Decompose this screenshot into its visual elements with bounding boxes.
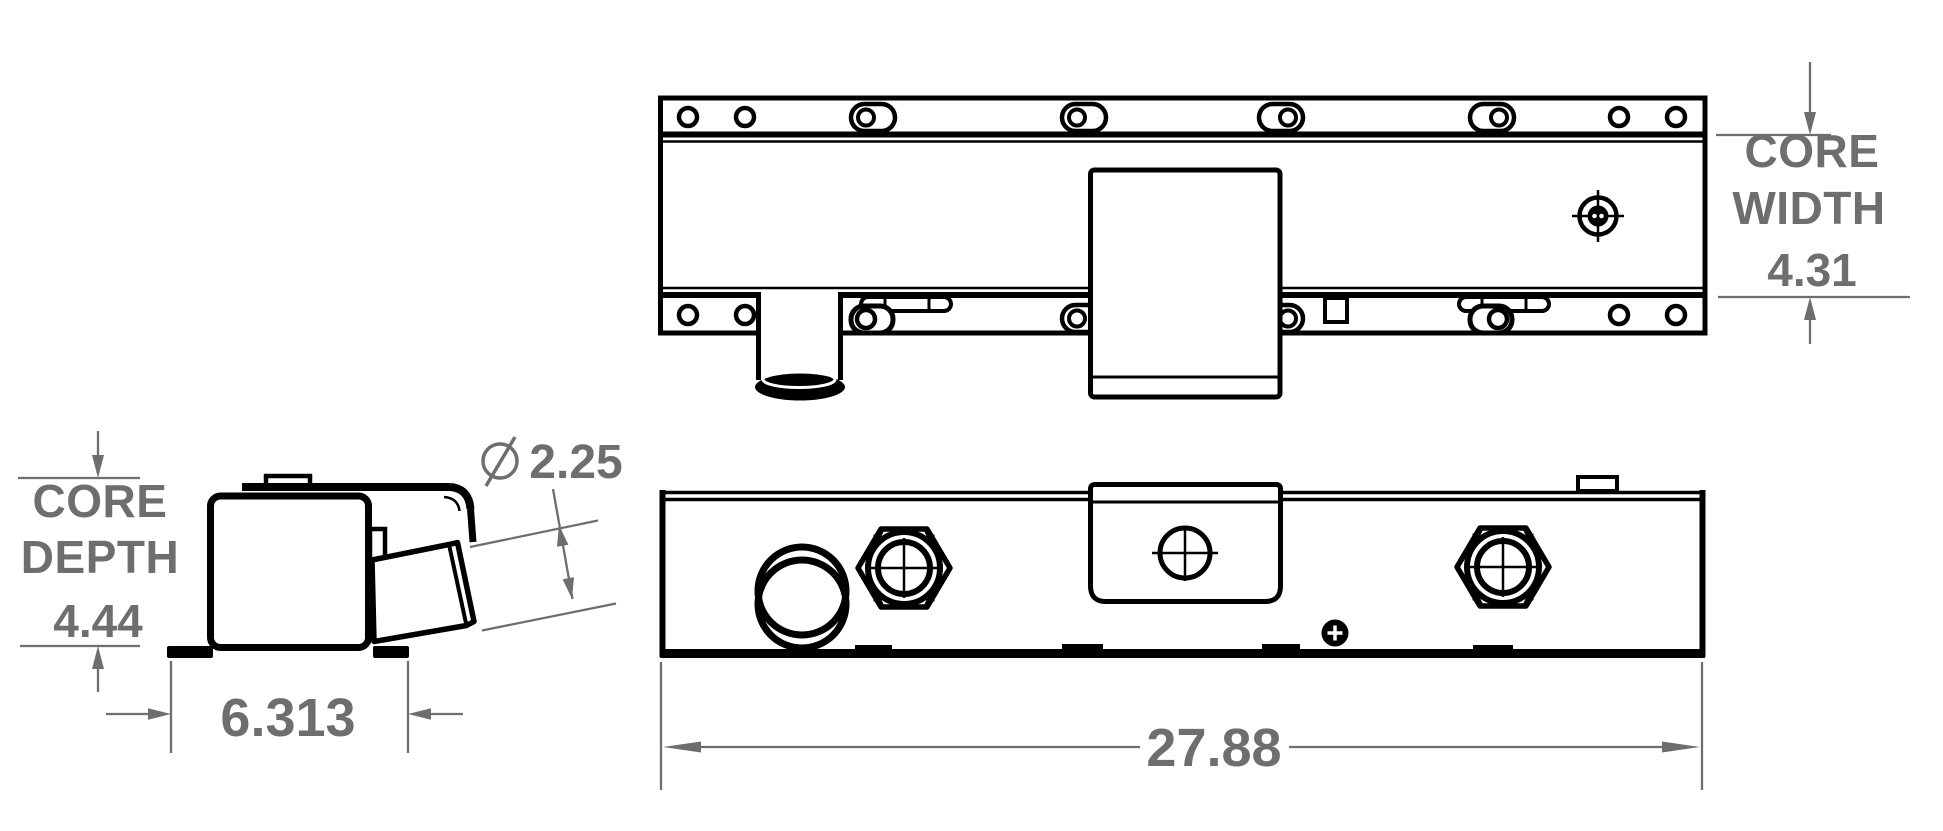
top-view — [660, 98, 1705, 401]
top-tab — [1578, 477, 1617, 491]
mounting-hole — [679, 306, 697, 324]
tank-outline — [1091, 170, 1281, 397]
core-depth-value: 4.44 — [53, 595, 143, 647]
mounting-hole — [1667, 108, 1685, 126]
front-view — [660, 477, 1705, 658]
core-width-label-1: CORE — [1745, 125, 1880, 177]
mounting-foot — [373, 646, 409, 658]
extension-line — [470, 521, 598, 548]
mounting-cleat — [1473, 645, 1513, 658]
mounting-hole — [736, 108, 754, 126]
core-width-label-2: WIDTH — [1732, 182, 1885, 234]
hex-fitting-icon — [858, 529, 950, 607]
diameter-dimension: 2.25 — [470, 436, 623, 631]
mounting-width-dimension: 6.313 — [106, 661, 463, 753]
mounting-hole — [1610, 108, 1628, 126]
top-cover-corner — [450, 487, 471, 509]
clip-ring — [857, 310, 875, 328]
slot-ring — [1069, 110, 1085, 126]
core-depth-label-2: DEPTH — [21, 531, 179, 583]
cap-center — [1588, 206, 1609, 227]
core-depth-label-1: CORE — [33, 475, 168, 527]
arrowhead-icon — [1804, 297, 1816, 320]
mounting-hole — [736, 306, 754, 324]
tank-top — [1091, 170, 1281, 397]
arrowhead-icon — [92, 646, 104, 669]
arrowhead-icon — [408, 708, 431, 720]
slot-ring — [858, 110, 874, 126]
arrowhead-icon — [563, 577, 574, 599]
core-depth-dimension: CORE DEPTH 4.44 — [18, 431, 179, 692]
end-view-body — [211, 496, 369, 648]
core-width-value: 4.31 — [1767, 244, 1857, 296]
outlet-flange — [372, 543, 474, 642]
part-geometry — [167, 98, 1705, 658]
clip-ring — [1489, 310, 1507, 328]
cap-detail — [1599, 214, 1604, 219]
mounting-cleat — [1062, 644, 1103, 653]
diameter-icon — [483, 437, 517, 486]
technical-drawing-canvas: CORE WIDTH 4.31 CORE DEPTH 4.44 2.25 — [0, 0, 1943, 831]
core-width-dimension: CORE WIDTH 4.31 — [1716, 62, 1910, 344]
tank-bracket — [1091, 485, 1281, 602]
flange-notch — [1325, 298, 1347, 322]
screw-icon — [1322, 620, 1349, 647]
mounting-hole — [1667, 306, 1685, 324]
cap-detail — [1592, 214, 1597, 219]
slot-ring — [1069, 311, 1085, 327]
mounting-cleat — [855, 645, 892, 658]
arrowhead-icon — [1662, 742, 1700, 753]
end-view — [167, 476, 474, 658]
mounting-width-value: 6.313 — [220, 688, 355, 748]
overall-length-value: 27.88 — [1146, 718, 1281, 778]
top-cover-inner — [444, 497, 460, 511]
mounting-cleat — [1262, 644, 1300, 653]
outlet-pipe-top — [755, 291, 845, 401]
hex-fitting-icon — [1457, 528, 1549, 606]
extension-line — [482, 604, 616, 631]
arrowhead-icon — [148, 708, 171, 720]
mounting-foot — [167, 646, 213, 658]
outlet-diameter-value: 2.25 — [529, 436, 622, 489]
mounting-hole — [679, 108, 697, 126]
arrowhead-icon — [663, 742, 701, 753]
engineering-drawing: CORE WIDTH 4.31 CORE DEPTH 4.44 2.25 — [0, 0, 1943, 831]
slot-ring — [1280, 110, 1296, 126]
slot-ring — [1491, 110, 1507, 126]
cover-right-edge — [471, 509, 474, 542]
overall-length-dimension: 27.88 — [661, 662, 1702, 790]
mounting-hole — [1610, 306, 1628, 324]
